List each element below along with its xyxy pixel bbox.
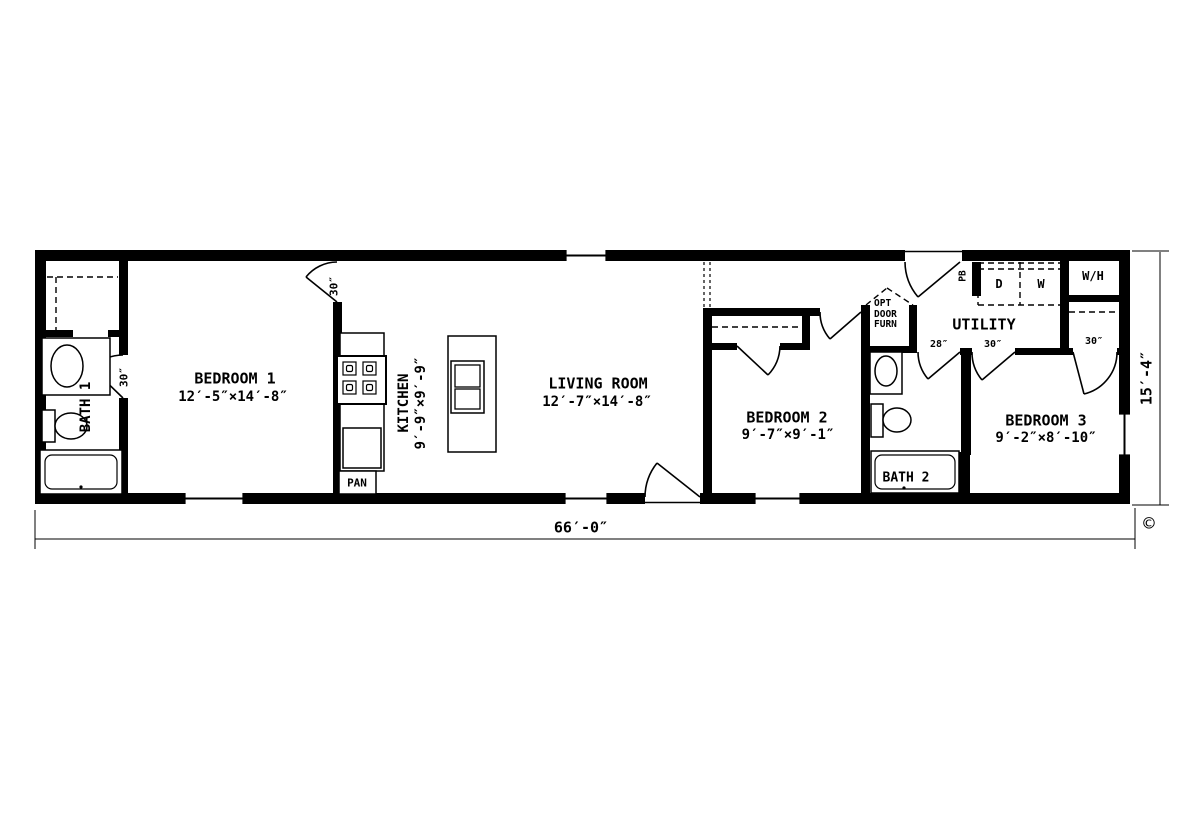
utility-label: UTILITY bbox=[952, 318, 1015, 333]
bath2-door-size: 28″ bbox=[930, 340, 948, 350]
water-heater-label: W/H bbox=[1082, 270, 1104, 282]
dryer-label: D bbox=[995, 278, 1002, 290]
furnace-closet-label: OPT DOOR FURN bbox=[874, 299, 897, 331]
living-room-label: LIVING ROOM bbox=[548, 377, 647, 392]
furnace-line3: FURN bbox=[874, 320, 897, 331]
kitchen-label-block: KITCHEN 9′-9″×9′-9″ bbox=[396, 357, 430, 450]
bath2-toilet bbox=[883, 408, 911, 432]
furnace-line1: OPT bbox=[874, 299, 897, 310]
washer-label: W bbox=[1037, 278, 1044, 290]
overall-depth-dimension: 15′-4″ bbox=[1140, 351, 1155, 405]
bath2-door-swing bbox=[918, 352, 960, 379]
bath1-door-size: 30″ bbox=[119, 367, 130, 387]
bath1-toilet-tank bbox=[42, 410, 55, 442]
bedroom3-dims: 9′-2″×8′-10″ bbox=[995, 431, 1096, 445]
bedroom2-dims: 9′-7″×9′-1″ bbox=[742, 428, 835, 442]
bedroom3-door-size: 30″ bbox=[984, 340, 1002, 350]
bedroom2-door-swing bbox=[820, 312, 861, 339]
bath2-sink bbox=[875, 356, 897, 386]
rear-door-swing bbox=[905, 262, 960, 297]
bedroom3-closet-door-size: 30″ bbox=[1085, 337, 1103, 347]
bedroom3-closet-door-swing bbox=[1073, 352, 1117, 394]
kitchen-label: KITCHEN bbox=[396, 357, 413, 450]
copyright-mark: © bbox=[1143, 515, 1154, 534]
pantry-label: PAN bbox=[347, 478, 367, 489]
panel-box-label: PB bbox=[958, 270, 968, 281]
kitchen-dims: 9′-9″×9′-9″ bbox=[413, 357, 430, 450]
bedroom3-door-swing bbox=[972, 352, 1015, 380]
overall-width-dimension: 66′-0″ bbox=[554, 521, 608, 536]
bath1-label: BATH 1 bbox=[79, 382, 93, 433]
floorplan-page: BEDROOM 1 12′-5″×14′-8″ KITCHEN 9′-9″×9′… bbox=[0, 0, 1200, 818]
refrigerator bbox=[343, 428, 381, 468]
bath2-toilet-tank bbox=[871, 404, 883, 437]
island-sink bbox=[451, 361, 484, 413]
bath2-label: BATH 2 bbox=[883, 472, 930, 485]
bedroom1-label: BEDROOM 1 bbox=[194, 372, 275, 387]
front-door-swing bbox=[645, 463, 700, 497]
bedroom1-door-size: 30″ bbox=[329, 276, 340, 296]
bath1-sink bbox=[51, 345, 83, 387]
bedroom2-closet-door-swing bbox=[737, 346, 780, 375]
bedroom2-label: BEDROOM 2 bbox=[746, 411, 827, 426]
ceiling-break-lines bbox=[704, 262, 710, 308]
bedroom3-label: BEDROOM 3 bbox=[1005, 414, 1086, 429]
living-room-dims: 12′-7″×14′-8″ bbox=[542, 395, 652, 409]
bedroom1-dims: 12′-5″×14′-8″ bbox=[178, 390, 288, 404]
